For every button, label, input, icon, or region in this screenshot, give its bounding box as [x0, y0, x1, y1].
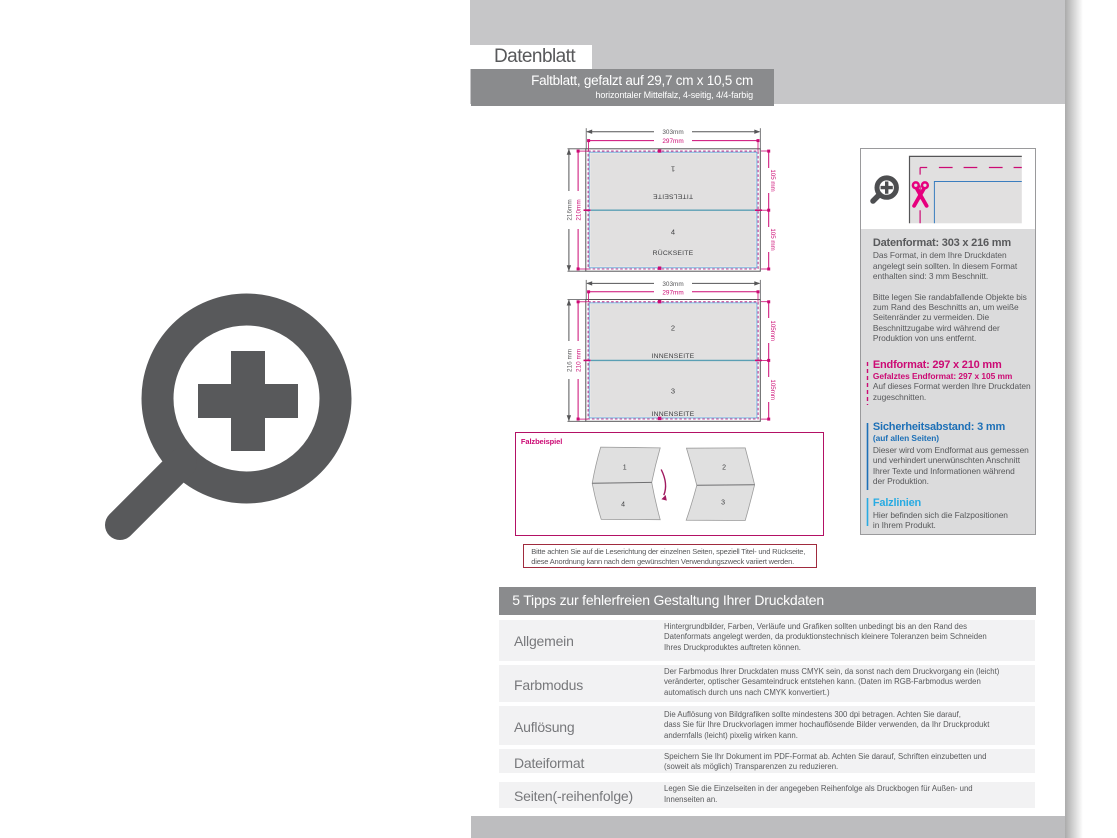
svg-text:INNENSEITE: INNENSEITE — [652, 411, 695, 418]
svg-text:INNENSEITE: INNENSEITE — [652, 353, 695, 360]
svg-text:105 mm: 105 mm — [769, 169, 776, 191]
svg-text:1: 1 — [623, 465, 627, 472]
svg-text:3: 3 — [721, 500, 725, 507]
svg-text:3: 3 — [671, 386, 675, 395]
svg-text:4: 4 — [671, 228, 675, 237]
svg-text:2: 2 — [722, 465, 726, 472]
svg-text:303mm: 303mm — [662, 129, 683, 136]
svg-text:2: 2 — [671, 323, 675, 332]
svg-text:1: 1 — [671, 164, 675, 173]
svg-text:RÜCKSEITE: RÜCKSEITE — [653, 249, 694, 257]
svg-text:303mm: 303mm — [662, 281, 683, 288]
svg-text:105mm: 105mm — [769, 379, 776, 400]
svg-text:297mm: 297mm — [662, 289, 683, 296]
svg-text:105 mm: 105 mm — [769, 228, 776, 250]
svg-text:4: 4 — [621, 502, 625, 509]
svg-text:210mm: 210mm — [576, 199, 583, 220]
svg-text:210 mm: 210 mm — [576, 349, 583, 372]
svg-text:TITELSEITE: TITELSEITE — [653, 192, 693, 199]
svg-text:216 mm: 216 mm — [566, 349, 573, 372]
svg-text:297mm: 297mm — [662, 138, 683, 145]
svg-text:216mm: 216mm — [566, 199, 573, 220]
svg-text:105mm: 105mm — [769, 320, 776, 341]
